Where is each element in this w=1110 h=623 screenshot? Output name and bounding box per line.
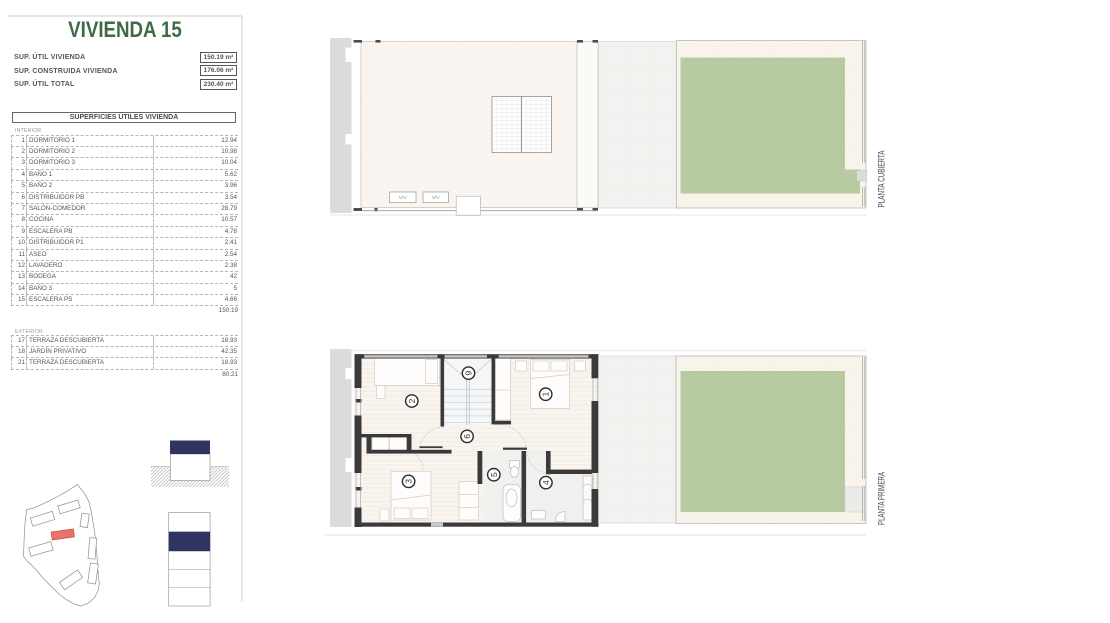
svg-text:V/V: V/V: [399, 195, 408, 201]
svg-text:1: 1: [541, 392, 551, 397]
svg-text:PLANTA CUBIERTA: PLANTA CUBIERTA: [877, 151, 887, 208]
svg-text:2: 2: [407, 398, 417, 403]
svg-text:V/V: V/V: [432, 195, 441, 201]
svg-text:3: 3: [404, 479, 414, 484]
svg-text:PLANTA PRIMERA: PLANTA PRIMERA: [877, 472, 887, 525]
svg-text:4: 4: [541, 480, 551, 485]
svg-text:9: 9: [464, 370, 474, 375]
svg-text:6: 6: [462, 434, 472, 439]
svg-text:5: 5: [489, 472, 499, 477]
